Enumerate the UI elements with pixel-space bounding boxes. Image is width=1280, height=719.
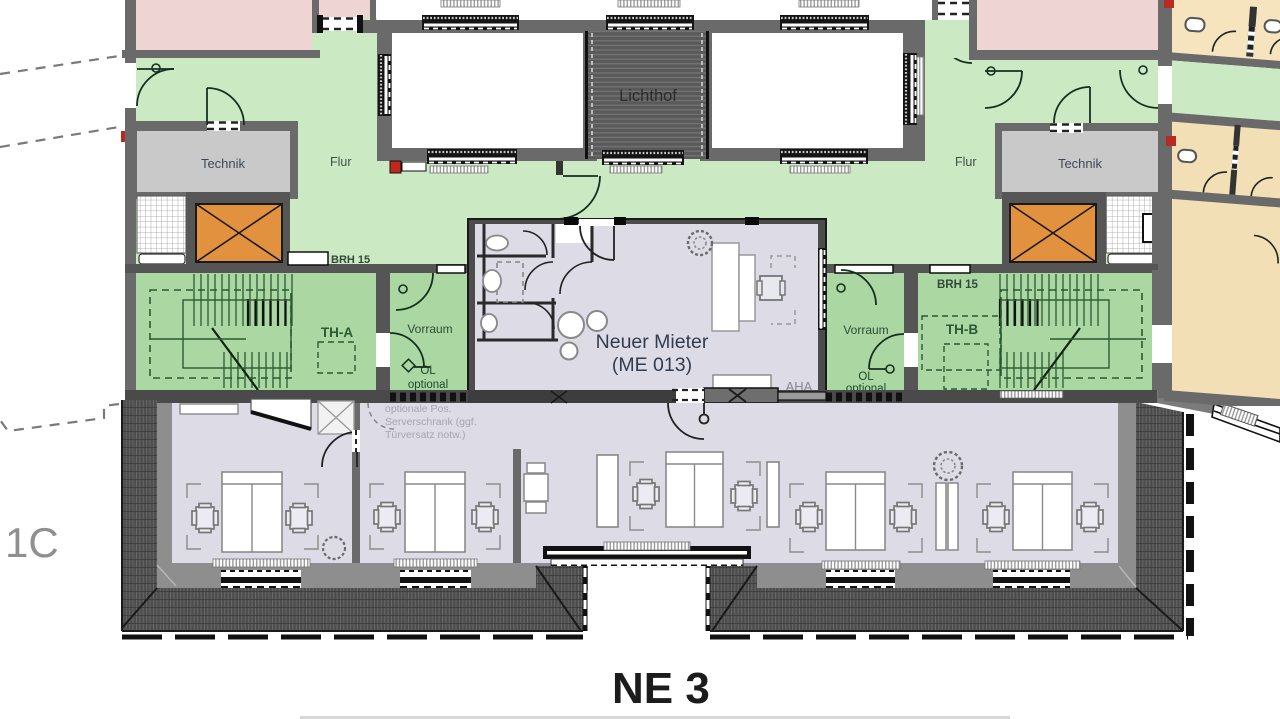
- svg-text:Technik: Technik: [1058, 156, 1103, 171]
- svg-text:BRH 15: BRH 15: [331, 254, 370, 266]
- svg-text:(ME 013): (ME 013): [612, 354, 692, 376]
- svg-text:Neuer Mieter: Neuer Mieter: [596, 331, 709, 353]
- svg-text:optionale Pos.: optionale Pos.: [385, 403, 452, 415]
- svg-text:Serverschrank (ggf.: Serverschrank (ggf.: [385, 416, 477, 428]
- svg-text:Flur: Flur: [955, 155, 977, 169]
- svg-text:NE 3: NE 3: [612, 664, 710, 713]
- svg-text:TH-A: TH-A: [321, 325, 353, 340]
- svg-text:BRH 15: BRH 15: [937, 279, 979, 291]
- svg-text:1C: 1C: [5, 519, 59, 566]
- svg-text:Türversatz notw.): Türversatz notw.): [385, 429, 466, 441]
- svg-text:Vorraum: Vorraum: [407, 322, 452, 336]
- svg-text:Technik: Technik: [201, 156, 246, 171]
- svg-text:TH-B: TH-B: [946, 322, 978, 337]
- svg-text:Flur: Flur: [330, 155, 352, 169]
- svg-text:Lichthof: Lichthof: [619, 87, 677, 105]
- svg-text:OL: OL: [858, 371, 874, 383]
- svg-text:optional: optional: [408, 379, 448, 391]
- svg-text:Vorraum: Vorraum: [843, 323, 888, 337]
